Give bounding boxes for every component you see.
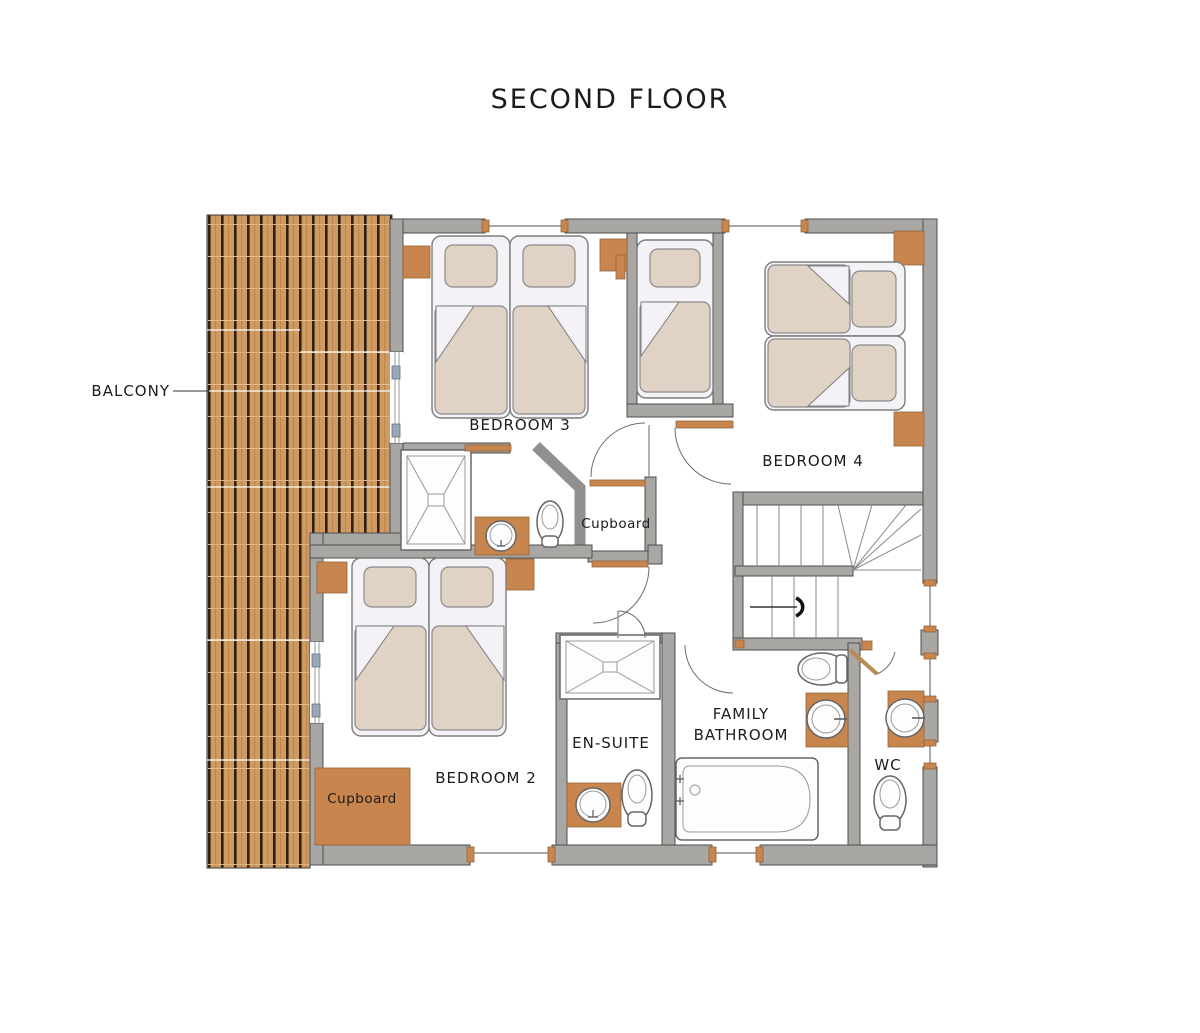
label-bedroom2: BEDROOM 2 xyxy=(435,769,537,787)
bed-bedroom2-left xyxy=(352,558,429,736)
label-bedroom4: BEDROOM 4 xyxy=(762,452,864,470)
stair-direction-arrow xyxy=(750,598,803,616)
door-arc-bathroom xyxy=(685,645,733,693)
door-threshold-bathroom-right xyxy=(862,641,872,650)
label-cupboard-upper: Cupboard xyxy=(581,516,651,532)
sliding-door-handle xyxy=(312,704,320,717)
door-arc-wc xyxy=(877,652,895,674)
door-threshold-bedroom2 xyxy=(592,561,648,567)
toilet-ensuite xyxy=(622,770,652,826)
pillow xyxy=(441,567,493,607)
pillow xyxy=(852,271,896,327)
door-threshold-shower3 xyxy=(465,445,511,451)
wall-right-upper xyxy=(923,219,937,583)
label-cupboard-lower: Cupboard xyxy=(327,791,397,807)
toilet-wc xyxy=(874,776,906,830)
page-title: SECOND FLOOR xyxy=(491,84,730,115)
wall-bed2-top-corner xyxy=(648,545,662,564)
label-ensuite: EN-SUITE xyxy=(572,734,650,752)
sliding-door-handle xyxy=(312,654,320,667)
bed-bedroom4-top xyxy=(765,262,905,336)
wall-top-2 xyxy=(565,219,725,233)
door-arc-bedroom4 xyxy=(675,428,731,484)
bedside-bedroom2-left xyxy=(317,562,347,593)
shower-ensuite xyxy=(560,635,660,699)
sliding-door-handle xyxy=(392,424,400,437)
wall-bottom-2 xyxy=(552,845,712,865)
wall-bathroom-top xyxy=(733,638,862,650)
label-family-bathroom-line1: FAMILY xyxy=(713,705,769,723)
pillow xyxy=(852,345,896,401)
toilet-family-bathroom xyxy=(798,653,847,685)
door-arc-bedroom2 xyxy=(593,567,649,623)
door-threshold-bathroom xyxy=(735,640,744,648)
wall-bed3-alcove xyxy=(627,233,637,404)
label-wc: WC xyxy=(874,756,901,774)
bed-single xyxy=(637,240,713,398)
bedside-bedroom2-right xyxy=(506,559,534,590)
basin-bedroom3 xyxy=(475,517,529,555)
wall-bottom-3 xyxy=(760,845,937,865)
label-balcony: BALCONY xyxy=(91,382,170,400)
wall-top-1 xyxy=(390,219,485,233)
wall-right-pier-1 xyxy=(921,630,938,655)
sliding-door-handle xyxy=(392,366,400,379)
bed-bedroom2-right xyxy=(429,558,506,736)
bedside-bedroom4-bottom xyxy=(894,412,924,446)
wall-ensuite-right xyxy=(662,633,675,845)
bedside-bedroom3-left xyxy=(403,246,430,278)
door-threshold-bedroom4 xyxy=(676,421,733,428)
wall-bathroom-wc xyxy=(848,643,860,845)
pillow xyxy=(364,567,416,607)
stair-treads-upper xyxy=(757,505,823,566)
bath xyxy=(676,758,818,840)
pillow xyxy=(650,249,700,287)
wall-bottom-1 xyxy=(310,845,470,865)
bed-bedroom4-bottom xyxy=(765,336,905,410)
wall-alcove-bed4 xyxy=(713,233,723,404)
door-threshold-cupboard xyxy=(590,480,645,486)
wall-stairs-landing xyxy=(735,566,853,576)
floor-plan-page: SECOND FLOOR BALCONY BEDROOM 3 BEDROOM 4… xyxy=(0,0,1200,1033)
stair-winders xyxy=(838,505,921,570)
bedside-alcove xyxy=(616,255,625,279)
bed-bedroom3-right xyxy=(510,236,588,418)
wall-cupboard-bottom xyxy=(588,551,656,562)
label-family-bathroom-line2: BATHROOM xyxy=(694,726,789,744)
basin-ensuite xyxy=(567,783,621,827)
floor-plan: SECOND FLOOR BALCONY BEDROOM 3 BEDROOM 4… xyxy=(0,0,1200,1033)
shower-bedroom3 xyxy=(401,450,471,550)
bed-bedroom3-left xyxy=(432,236,510,418)
toilet-bedroom3 xyxy=(537,501,563,547)
wall-stairs-top xyxy=(733,492,923,505)
wall-west-bed3-upper xyxy=(390,219,403,352)
door-arc-bedroom3 xyxy=(591,423,645,477)
basin-wc xyxy=(886,691,925,747)
label-bedroom3: BEDROOM 3 xyxy=(469,416,571,434)
wall-alcove-bottom xyxy=(627,404,733,417)
bedside-bedroom4-top xyxy=(894,231,924,265)
pillow xyxy=(445,245,497,287)
wall-west-jog xyxy=(310,533,403,546)
pillow xyxy=(523,245,575,287)
basin-family-bathroom xyxy=(806,693,848,747)
